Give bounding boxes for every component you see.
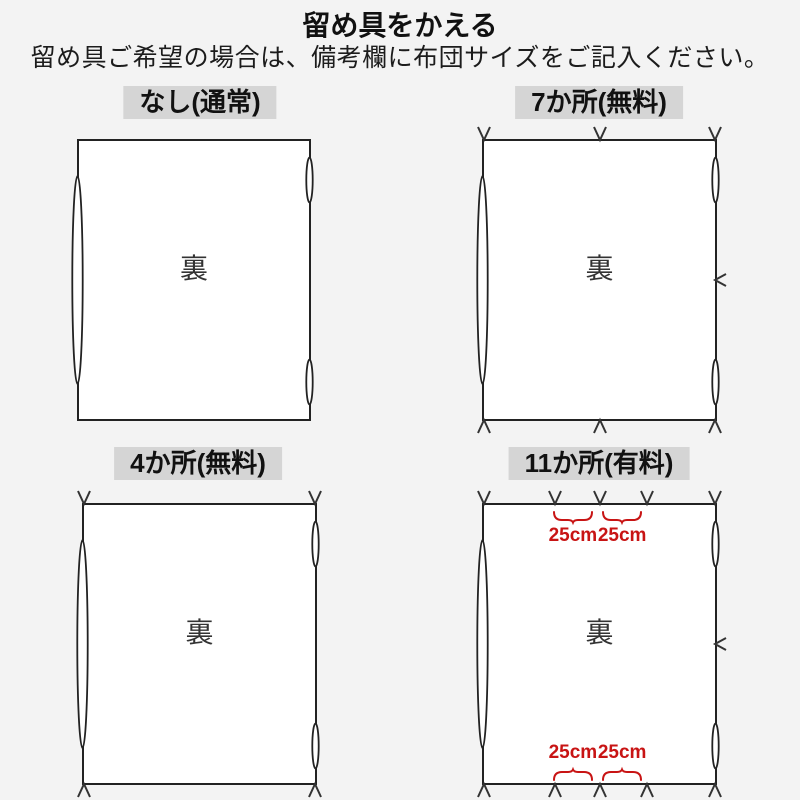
side-opening-ellipse-icon [476,174,489,386]
page: 留め具をかえる 留め具ご希望の場合は、備考欄に布団サイズをご記入ください。 なし… [0,0,800,800]
fastener-mark-v-icon [476,126,492,141]
small-opening-ellipse-icon [711,520,720,568]
back-side-label: 裏 [180,247,208,287]
measurement-label: 25cm [590,525,654,547]
futon-back-sheet: 裏 [77,139,311,421]
small-opening-ellipse-icon [305,358,314,406]
small-opening-ellipse-icon [711,722,720,770]
small-opening-ellipse-icon [711,156,720,204]
panel-label-eleven: 11か所(有料) [509,447,690,480]
panel-label-none: なし(通常) [123,86,276,119]
panel-label-seven: 7か所(無料) [515,86,683,119]
measure-brace-icon [602,769,642,781]
side-opening-ellipse-icon [71,174,84,386]
measure-brace-icon [602,511,642,523]
small-opening-ellipse-icon [305,156,314,204]
measure-brace-icon [553,511,593,523]
fastener-mark-v-icon [592,490,608,505]
small-opening-ellipse-icon [311,722,320,770]
back-side-label: 裏 [185,611,213,651]
fastener-mark-v-icon [639,490,655,505]
side-opening-ellipse-icon [476,538,489,750]
fastener-mark-caret-icon [592,419,608,434]
panel-label-four: 4か所(無料) [114,447,282,480]
fastener-mark-v-icon [307,490,323,505]
fastener-mark-left-chevron-icon [713,272,727,288]
back-side-label: 裏 [585,611,613,651]
fastener-mark-v-icon [476,490,492,505]
page-subtitle: 留め具ご希望の場合は、備考欄に布団サイズをご記入ください。 [0,38,800,74]
fastener-mark-v-icon [707,126,723,141]
side-opening-ellipse-icon [76,538,89,750]
fastener-mark-caret-icon [476,419,492,434]
fastener-mark-v-icon [592,126,608,141]
fastener-mark-caret-icon [547,783,563,798]
fastener-mark-caret-icon [639,783,655,798]
futon-back-sheet: 裏 [482,139,717,421]
fastener-mark-v-icon [707,490,723,505]
small-opening-ellipse-icon [311,520,320,568]
futon-back-sheet: 裏 25cm 25cm 25cm 25cm [482,503,717,785]
fastener-mark-caret-icon [707,419,723,434]
back-side-label: 裏 [585,247,613,287]
measurement-label: 25cm [590,742,654,764]
fastener-mark-caret-icon [76,783,92,798]
fastener-mark-caret-icon [307,783,323,798]
fastener-mark-left-chevron-icon [713,636,727,652]
small-opening-ellipse-icon [711,358,720,406]
measure-brace-icon [553,769,593,781]
futon-back-sheet: 裏 [82,503,317,785]
fastener-mark-v-icon [547,490,563,505]
fastener-mark-v-icon [76,490,92,505]
fastener-mark-caret-icon [707,783,723,798]
fastener-mark-caret-icon [592,783,608,798]
fastener-mark-caret-icon [476,783,492,798]
